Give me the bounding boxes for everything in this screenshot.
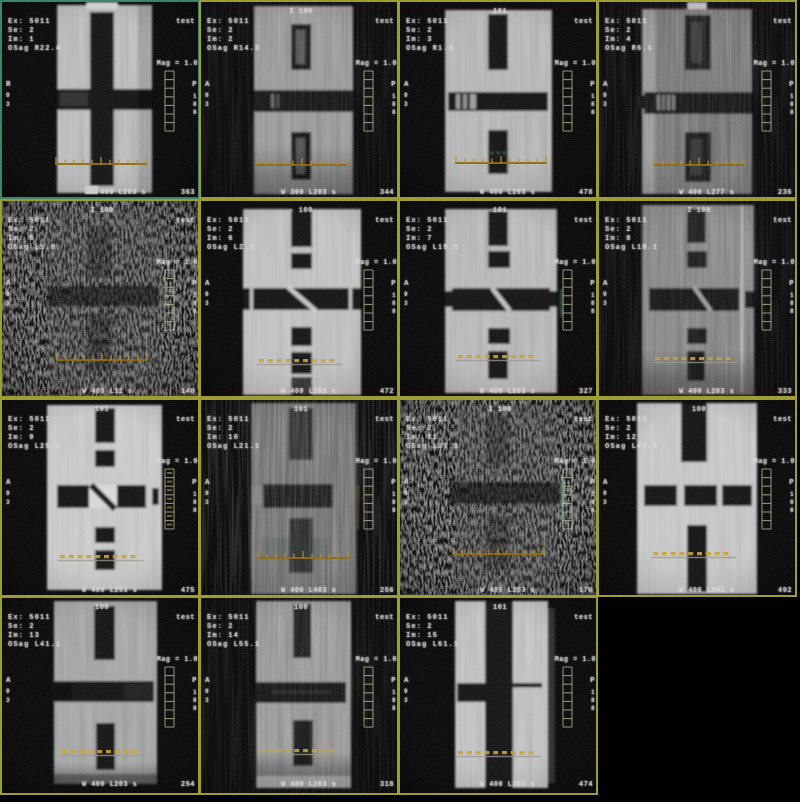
svg-text:Im: 6: Im: 6: [207, 235, 234, 243]
svg-text:8: 8: [790, 507, 794, 514]
svg-text:Ex: 5011: Ex: 5011: [406, 614, 449, 622]
svg-text:8: 8: [193, 499, 197, 506]
svg-text:W 400 L203 s: W 400 L203 s: [82, 781, 137, 789]
svg-text:Mag = 1.0: Mag = 1.0: [356, 60, 397, 68]
svg-text:3: 3: [6, 101, 10, 108]
svg-text:OSag L21.1: OSag L21.1: [207, 443, 260, 451]
svg-text:Mag = 1.0: Mag = 1.0: [356, 458, 397, 466]
svg-text:140: 140: [181, 388, 195, 396]
svg-text:P: P: [590, 81, 595, 89]
svg-text:Im: 2: Im: 2: [207, 36, 234, 44]
svg-text:W 300 L203 s: W 300 L203 s: [281, 189, 336, 197]
svg-text:Ex: 5011: Ex: 5011: [8, 614, 51, 622]
svg-text:8: 8: [790, 101, 794, 108]
svg-text:8: 8: [790, 499, 794, 506]
svg-text:333: 333: [778, 388, 792, 396]
svg-text:9: 9: [6, 688, 10, 695]
svg-text:Se: 2: Se: 2: [207, 226, 234, 234]
svg-text:test: test: [773, 18, 792, 26]
svg-text:W 400 L302 s: W 400 L302 s: [679, 587, 734, 595]
svg-text:W 400 L277 s: W 400 L277 s: [679, 189, 734, 197]
svg-text:9: 9: [205, 291, 209, 298]
svg-text:P: P: [789, 81, 794, 89]
svg-text:8: 8: [591, 101, 595, 108]
svg-text:8: 8: [193, 109, 197, 116]
svg-text:400 L203 s: 400 L203 s: [100, 189, 146, 197]
svg-text:3: 3: [205, 300, 209, 307]
svg-text:8: 8: [193, 101, 197, 108]
svg-text:8: 8: [193, 300, 197, 307]
svg-text:OSag L61.1: OSag L61.1: [406, 641, 459, 649]
svg-text:8: 8: [790, 308, 794, 315]
svg-text:Ex: 5011: Ex: 5011: [406, 18, 449, 26]
svg-text:100: 100: [95, 604, 109, 612]
svg-text:Mag = 1.0: Mag = 1.0: [157, 259, 198, 267]
svg-text:P: P: [192, 280, 197, 288]
svg-text:9: 9: [6, 291, 10, 298]
svg-text:A: A: [603, 479, 608, 487]
svg-text:1: 1: [790, 491, 794, 498]
svg-text:9: 9: [404, 92, 408, 99]
svg-text:344: 344: [380, 189, 394, 197]
svg-text:1: 1: [591, 93, 595, 100]
svg-text:318: 318: [380, 781, 394, 789]
svg-text:W 400 L203 s: W 400 L203 s: [480, 781, 535, 789]
svg-text:101: 101: [294, 406, 308, 414]
svg-text:W 400 L253 s: W 400 L253 s: [82, 587, 137, 595]
svg-text:W 400 L203 s: W 400 L203 s: [281, 781, 336, 789]
svg-text:Im: 11: Im: 11: [406, 434, 438, 442]
svg-text:Ex: 5011: Ex: 5011: [207, 614, 250, 622]
svg-text:OSag L41.1: OSag L41.1: [8, 641, 61, 649]
svg-text:test: test: [375, 217, 394, 225]
svg-text:A: A: [404, 479, 409, 487]
svg-text:Im: 10: Im: 10: [207, 434, 239, 442]
svg-text:Im: 12: Im: 12: [605, 434, 637, 442]
svg-text:test: test: [574, 614, 593, 622]
svg-text:A: A: [404, 280, 409, 288]
svg-text:A: A: [205, 479, 210, 487]
svg-text:478: 478: [579, 189, 593, 197]
svg-text:OSag L47.1: OSag L47.1: [605, 443, 658, 451]
svg-text:OSag R1.3: OSag R1.3: [406, 45, 454, 53]
svg-text:W 400 L253 s: W 400 L253 s: [480, 388, 535, 396]
svg-text:Se: 2: Se: 2: [8, 226, 35, 234]
svg-text:W 400 L11 s: W 400 L11 s: [82, 388, 133, 396]
svg-text:Se: 2: Se: 2: [207, 623, 234, 631]
svg-text:A: A: [6, 677, 11, 685]
svg-text:100: 100: [294, 604, 308, 612]
svg-text:9: 9: [404, 688, 408, 695]
svg-text:Se: 2: Se: 2: [8, 623, 35, 631]
svg-text:1: 1: [591, 689, 595, 696]
svg-text:Mag = 1.0: Mag = 1.0: [555, 259, 596, 267]
svg-text:P: P: [391, 677, 396, 685]
svg-text:8: 8: [591, 300, 595, 307]
svg-text:OSag L15.1: OSag L15.1: [406, 244, 459, 252]
svg-text:Ex: 5011: Ex: 5011: [605, 416, 648, 424]
svg-text:8: 8: [193, 507, 197, 514]
svg-text:9: 9: [6, 490, 10, 497]
svg-text:9: 9: [205, 92, 209, 99]
svg-text:Se: 2: Se: 2: [207, 27, 234, 35]
svg-text:A: A: [205, 677, 210, 685]
svg-text:test: test: [375, 614, 394, 622]
svg-text:3: 3: [404, 499, 408, 506]
svg-text:101: 101: [95, 406, 109, 414]
svg-text:Mag = 1.0: Mag = 1.0: [157, 458, 198, 466]
svg-text:Ex: 5011: Ex: 5011: [605, 18, 648, 26]
svg-text:1: 1: [193, 93, 197, 100]
svg-text:Im: 14: Im: 14: [207, 632, 239, 640]
svg-text:9: 9: [603, 490, 607, 497]
svg-text:P: P: [391, 81, 396, 89]
svg-text:P: P: [789, 280, 794, 288]
svg-text:test: test: [176, 18, 195, 26]
svg-text:472: 472: [380, 388, 394, 396]
svg-text:I 100: I 100: [488, 406, 512, 414]
svg-text:Mag = 1.0: Mag = 1.0: [754, 458, 795, 466]
svg-text:8: 8: [193, 308, 197, 315]
svg-text:W 400 L403 s: W 400 L403 s: [281, 587, 336, 595]
svg-text:3: 3: [603, 300, 607, 307]
svg-text:W 400 L203 s: W 400 L203 s: [281, 388, 336, 396]
svg-text:Im: 3: Im: 3: [406, 36, 433, 44]
svg-text:W 400 L253 s: W 400 L253 s: [480, 587, 535, 595]
svg-text:Mag = 1.0: Mag = 1.0: [555, 60, 596, 68]
svg-text:9: 9: [603, 291, 607, 298]
svg-text:8: 8: [591, 109, 595, 116]
svg-text:P: P: [590, 677, 595, 685]
svg-text:475: 475: [181, 587, 195, 595]
svg-text:Se: 2: Se: 2: [605, 425, 632, 433]
svg-text:9: 9: [404, 490, 408, 497]
svg-text:3: 3: [603, 101, 607, 108]
svg-text:Mag = 1.0: Mag = 1.0: [555, 458, 596, 466]
svg-text:A: A: [603, 81, 608, 89]
svg-text:Im: 8: Im: 8: [605, 235, 632, 243]
svg-text:Se: 2: Se: 2: [406, 27, 433, 35]
svg-text:I 100: I 100: [687, 207, 711, 215]
svg-text:A: A: [603, 280, 608, 288]
svg-text:test: test: [574, 416, 593, 424]
svg-text:Se: 2: Se: 2: [406, 623, 433, 631]
svg-text:Mag = 1.0: Mag = 1.0: [157, 656, 198, 664]
svg-text:Ex: 5011: Ex: 5011: [8, 416, 51, 424]
svg-text:P: P: [391, 479, 396, 487]
svg-text:8: 8: [392, 499, 396, 506]
svg-text:8: 8: [193, 705, 197, 712]
svg-text:9: 9: [205, 688, 209, 695]
svg-text:Se: 2: Se: 2: [207, 425, 234, 433]
svg-text:Se: 2: Se: 2: [406, 226, 433, 234]
svg-text:3: 3: [404, 697, 408, 704]
svg-text:Im: 15: Im: 15: [406, 632, 438, 640]
svg-text:test: test: [773, 217, 792, 225]
svg-text:A: A: [404, 677, 409, 685]
svg-text:Ex: 5011: Ex: 5011: [8, 18, 51, 26]
svg-text:Ex: 5011: Ex: 5011: [406, 217, 449, 225]
svg-text:Im: 7: Im: 7: [406, 235, 433, 243]
svg-text:A: A: [404, 81, 409, 89]
svg-text:1: 1: [591, 491, 595, 498]
svg-text:474: 474: [579, 781, 593, 789]
svg-text:P: P: [192, 81, 197, 89]
svg-text:A: A: [6, 280, 11, 288]
svg-text:OSag L27.1: OSag L27.1: [406, 443, 459, 451]
svg-text:9: 9: [6, 92, 10, 99]
svg-text:Im: 5: Im: 5: [8, 235, 35, 243]
svg-text:1: 1: [392, 93, 396, 100]
svg-text:8: 8: [790, 300, 794, 307]
svg-text:OSag R6.1: OSag R6.1: [605, 45, 653, 53]
svg-text:test: test: [375, 18, 394, 26]
svg-text:8: 8: [392, 705, 396, 712]
svg-text:test: test: [176, 217, 195, 225]
svg-text:I 100: I 100: [90, 207, 114, 215]
svg-text:Im: 9: Im: 9: [8, 434, 35, 442]
svg-text:Mag = 1.0: Mag = 1.0: [356, 259, 397, 267]
svg-text:P: P: [590, 280, 595, 288]
svg-text:Se: 2: Se: 2: [605, 226, 632, 234]
svg-text:Ex: 5011: Ex: 5011: [8, 217, 51, 225]
svg-text:test: test: [176, 614, 195, 622]
svg-text:I 100: I 100: [289, 8, 313, 16]
svg-text:3: 3: [6, 697, 10, 704]
svg-text:1: 1: [591, 292, 595, 299]
svg-text:P: P: [789, 479, 794, 487]
svg-text:Mag = 1.0: Mag = 1.0: [157, 60, 198, 68]
svg-text:3: 3: [205, 101, 209, 108]
svg-text:Se: 2: Se: 2: [406, 425, 433, 433]
svg-text:1: 1: [193, 292, 197, 299]
svg-text:Mag = 1.0: Mag = 1.0: [356, 656, 397, 664]
svg-text:Se: 2: Se: 2: [8, 425, 35, 433]
svg-text:OSag L19.1: OSag L19.1: [605, 244, 658, 252]
svg-text:P: P: [192, 677, 197, 685]
svg-text:Ex: 5011: Ex: 5011: [207, 18, 250, 26]
svg-text:Ex: 5011: Ex: 5011: [406, 416, 449, 424]
svg-text:A: A: [6, 479, 11, 487]
svg-text:W 400 L203 s: W 400 L203 s: [480, 189, 535, 197]
svg-text:8: 8: [790, 109, 794, 116]
svg-text:Se: 2: Se: 2: [8, 27, 35, 35]
svg-text:P: P: [192, 479, 197, 487]
svg-text:9: 9: [603, 92, 607, 99]
svg-text:Mag = 1.0: Mag = 1.0: [555, 656, 596, 664]
svg-text:Ex: 5011: Ex: 5011: [207, 416, 250, 424]
svg-text:101: 101: [493, 604, 507, 612]
svg-text:test: test: [375, 416, 394, 424]
svg-text:OSag L55.1: OSag L55.1: [207, 641, 260, 649]
svg-text:OSag L1.0: OSag L1.0: [8, 244, 56, 252]
svg-text:8: 8: [392, 300, 396, 307]
svg-text:Im: 1: Im: 1: [8, 36, 35, 44]
svg-text:Mag = 1.0: Mag = 1.0: [754, 259, 795, 267]
svg-text:- 100: - 100: [289, 207, 313, 215]
svg-text:8: 8: [591, 705, 595, 712]
svg-text:256: 256: [380, 587, 394, 595]
svg-text:W 400 L203 s: W 400 L203 s: [679, 388, 734, 396]
svg-text:test: test: [574, 217, 593, 225]
svg-text:A: A: [205, 81, 210, 89]
svg-text:100: 100: [692, 406, 706, 414]
svg-text:327: 327: [579, 388, 593, 396]
svg-text:OSag R14.3: OSag R14.3: [207, 45, 260, 53]
svg-text:101: 101: [493, 207, 507, 215]
svg-text:P: P: [590, 479, 595, 487]
svg-text:OSag L2.1: OSag L2.1: [207, 244, 255, 252]
svg-text:101: 101: [493, 8, 507, 16]
svg-text:Se: 2: Se: 2: [605, 27, 632, 35]
svg-text:254: 254: [181, 781, 195, 789]
svg-text:test: test: [773, 416, 792, 424]
svg-text:236: 236: [778, 189, 792, 197]
svg-text:test: test: [176, 416, 195, 424]
svg-text:8: 8: [591, 507, 595, 514]
svg-text:A: A: [205, 280, 210, 288]
svg-text:1: 1: [392, 491, 396, 498]
svg-text:Mag = 1.0: Mag = 1.0: [754, 60, 795, 68]
svg-text:176: 176: [579, 587, 593, 595]
svg-text:1: 1: [193, 689, 197, 696]
svg-text:Im: 4: Im: 4: [605, 36, 632, 44]
svg-text:3: 3: [6, 300, 10, 307]
svg-text:3: 3: [603, 499, 607, 506]
svg-text:1: 1: [392, 292, 396, 299]
svg-text:363: 363: [181, 189, 195, 197]
svg-text:9: 9: [205, 490, 209, 497]
svg-text:8: 8: [193, 697, 197, 704]
svg-text:Ex: 5011: Ex: 5011: [605, 217, 648, 225]
svg-text:8: 8: [591, 697, 595, 704]
svg-text:1: 1: [790, 292, 794, 299]
svg-text:1: 1: [193, 491, 197, 498]
svg-text:test: test: [574, 18, 593, 26]
svg-text:R: R: [6, 81, 11, 89]
svg-text:P: P: [391, 280, 396, 288]
svg-text:1: 1: [790, 93, 794, 100]
svg-text:3: 3: [404, 300, 408, 307]
svg-text:3: 3: [205, 697, 209, 704]
svg-text:8: 8: [591, 499, 595, 506]
svg-text:492: 492: [778, 587, 792, 595]
svg-text:8: 8: [392, 308, 396, 315]
svg-text:1: 1: [392, 689, 396, 696]
svg-text:8: 8: [392, 507, 396, 514]
svg-text:3: 3: [404, 101, 408, 108]
svg-text:Ex: 5011: Ex: 5011: [207, 217, 250, 225]
svg-text:8: 8: [392, 697, 396, 704]
svg-text:3: 3: [205, 499, 209, 506]
svg-text:9: 9: [404, 291, 408, 298]
svg-text:8: 8: [392, 101, 396, 108]
svg-text:8: 8: [392, 109, 396, 116]
svg-text:8: 8: [591, 308, 595, 315]
svg-text:OSag L25.1: OSag L25.1: [8, 443, 61, 451]
svg-text:Im: 13: Im: 13: [8, 632, 40, 640]
svg-text:OSag R22.4: OSag R22.4: [8, 45, 61, 53]
svg-text:3: 3: [6, 499, 10, 506]
